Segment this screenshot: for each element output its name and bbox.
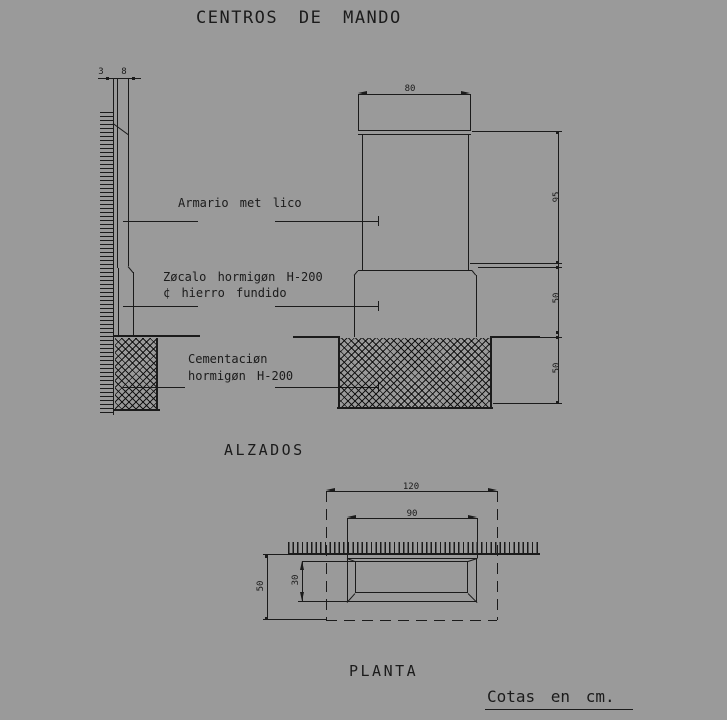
extension-line — [470, 263, 562, 264]
cap-band-line — [358, 134, 471, 135]
foundation-hatch — [115, 338, 157, 410]
dim-label-foundation-depth: 50 — [256, 576, 266, 596]
extension-line — [263, 619, 326, 620]
dim-label-cabinet-height: 95 — [552, 187, 562, 207]
extension-line — [493, 403, 562, 404]
dimension-tick — [265, 555, 268, 558]
foundation-edge — [156, 338, 158, 410]
foundation-edge — [338, 338, 340, 408]
dim-label-foundation-width: 120 — [400, 482, 422, 492]
cabinet-plan-inner — [355, 561, 468, 593]
ground-line — [113, 335, 200, 337]
leader-zocalo — [275, 306, 378, 307]
cap-left-line — [358, 94, 359, 130]
label-armario: Armario met lico — [178, 196, 302, 210]
dim-label-cabinet-width: 80 — [402, 84, 418, 94]
leader-armario — [123, 221, 198, 222]
ground-line — [293, 336, 340, 338]
dimension-arrow — [347, 515, 356, 519]
label-zocalo-2: ¢ hierro fundido — [163, 286, 287, 300]
leader-zocalo — [123, 306, 198, 307]
dimension-arrow — [300, 561, 304, 570]
dimension-tick — [556, 336, 559, 339]
dim-label-cabinet-depth-plan: 30 — [291, 570, 301, 590]
dimension-tick — [556, 266, 559, 269]
extension-line — [472, 131, 562, 132]
body-right-line — [468, 134, 469, 270]
foundation-bottom — [113, 409, 160, 411]
wall-hatch — [100, 112, 113, 415]
zocalo-back-line — [118, 268, 119, 337]
dimension-line — [267, 556, 268, 619]
dim-label-zocalo-height: 50 — [552, 288, 562, 308]
cap-bottom-line — [358, 130, 471, 131]
foundation-edge — [490, 338, 492, 408]
cap-right-line — [470, 94, 471, 130]
foundation-hatch — [340, 338, 490, 408]
dimension-arrow — [468, 515, 477, 519]
dimension-arrow — [488, 488, 497, 492]
body-bottom-line — [358, 270, 472, 271]
dimension-arrow — [326, 488, 335, 492]
zocalo-right-line — [476, 275, 477, 337]
drawing-title: CENTROS DE MANDO — [196, 8, 402, 28]
wall-line — [113, 78, 114, 415]
break-line — [113, 123, 129, 135]
zocalo-front-line — [133, 272, 134, 337]
dimension-line — [358, 94, 470, 95]
caption-planta: PLANTA — [349, 662, 418, 680]
dim-label-foundation-height: 50 — [552, 358, 562, 378]
extension-line — [298, 601, 347, 602]
wall-face-line — [288, 553, 540, 555]
dim-label-wall-gap: 3 — [95, 67, 107, 77]
cabinet-back-line — [117, 78, 118, 268]
caption-alzados: ALZADOS — [224, 441, 305, 459]
dimension-tick — [132, 77, 135, 80]
ground-line — [490, 336, 540, 338]
label-cementacion-2: hormigøn H-200 — [188, 369, 293, 383]
dim-label-cabinet-depth: 8 — [118, 67, 130, 77]
dimension-tick — [106, 77, 109, 80]
foundation-hidden-line — [326, 620, 497, 621]
label-zocalo-1: Zøcalo hormigøn H-200 — [163, 270, 323, 284]
label-cementacion-1: Cementaciøn — [188, 352, 267, 366]
cabinet-front-line — [128, 78, 129, 266]
leader-cementacion — [123, 387, 185, 388]
dimension-tick — [556, 401, 559, 404]
extension-line — [263, 554, 289, 555]
dimension-tick — [556, 331, 559, 334]
foundation-bottom — [337, 407, 493, 409]
dimension-arrow — [358, 91, 367, 95]
wall-hatch-plan — [288, 542, 540, 553]
dimension-tick — [556, 261, 559, 264]
leader-tick — [378, 301, 379, 311]
extension-line — [302, 561, 355, 562]
leader-tick — [378, 216, 379, 226]
extension-line — [478, 267, 562, 268]
foundation-hidden-line — [497, 491, 498, 620]
dimension-tick — [556, 131, 559, 134]
dim-label-cabinet-width-plan: 90 — [404, 509, 420, 519]
units-note: Cotas en cm. — [485, 687, 633, 710]
dimension-arrow — [300, 592, 304, 601]
body-left-line — [362, 134, 363, 270]
zocalo-left-line — [354, 275, 355, 337]
dimension-arrow — [461, 91, 470, 95]
cad-drawing-canvas: CENTROS DE MANDO 3 8 Armar — [0, 0, 727, 720]
